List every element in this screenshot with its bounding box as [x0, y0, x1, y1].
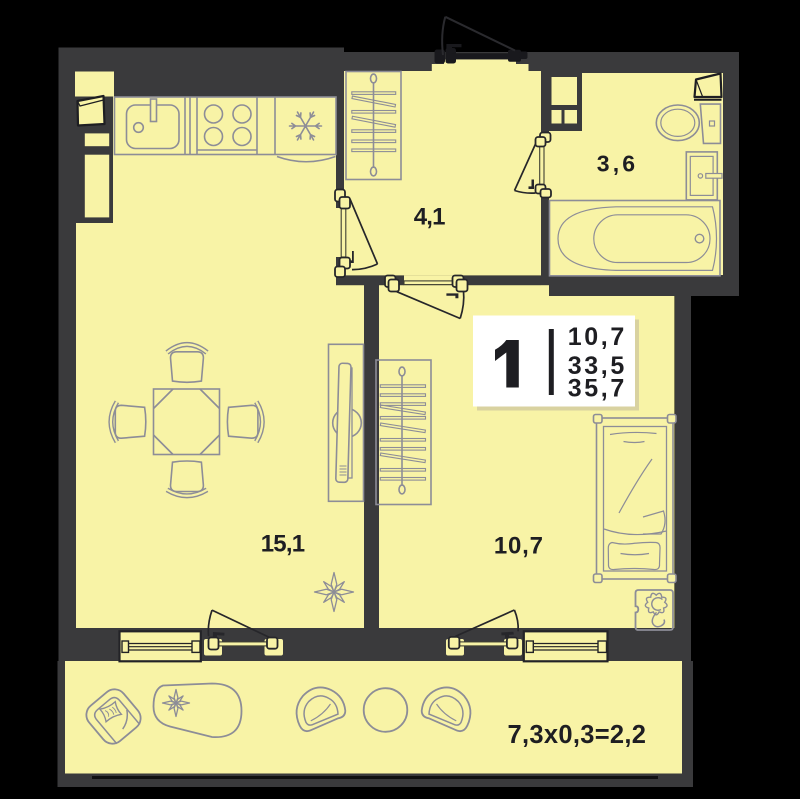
svg-text:7,3х0,3=2,2: 7,3х0,3=2,2	[508, 721, 647, 749]
svg-text:3,6: 3,6	[597, 151, 639, 177]
svg-text:10,7: 10,7	[568, 323, 627, 351]
svg-text:10,7: 10,7	[494, 533, 544, 560]
svg-text:15,1: 15,1	[261, 531, 305, 558]
svg-text:35,7: 35,7	[568, 375, 627, 403]
svg-text:4,1: 4,1	[414, 204, 445, 231]
